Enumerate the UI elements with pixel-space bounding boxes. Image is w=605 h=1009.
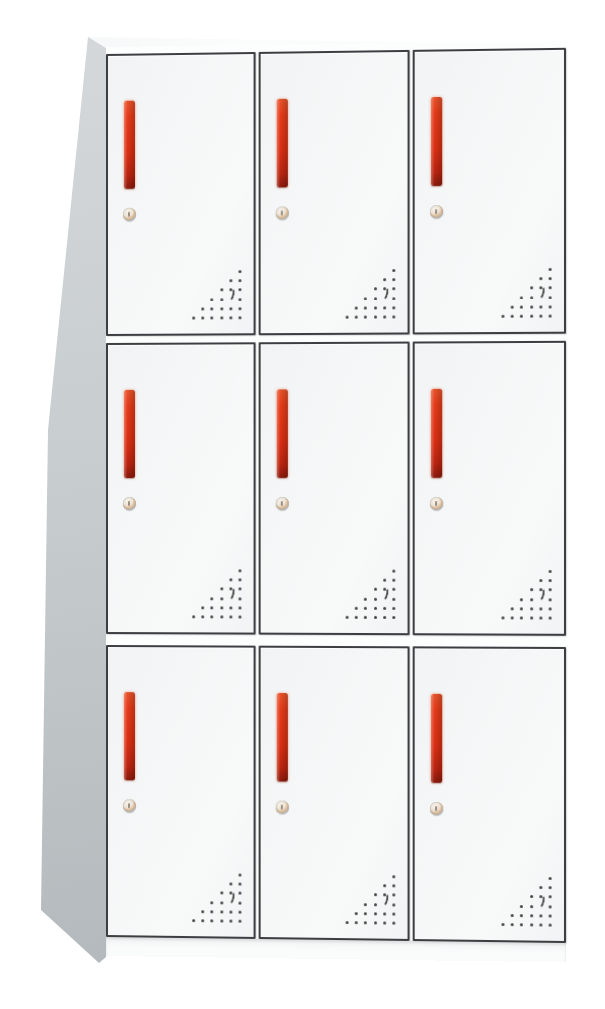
vent-hole-dot: [364, 912, 367, 915]
vent-hole-dot: [229, 307, 232, 310]
vent-hole-dot: [229, 606, 232, 609]
locker-door: [413, 48, 566, 335]
vent-hole-dot: [374, 597, 377, 600]
vent-hole-dot: [501, 923, 504, 926]
vent-hole-dot: [392, 306, 395, 309]
vent-hole-dot: [201, 316, 204, 319]
vent-hole-dot: [238, 920, 241, 923]
vent-hole-dot: [355, 921, 358, 924]
vent-hole-dot: [530, 598, 533, 601]
vent-hole-dot: [511, 914, 514, 917]
vent-hole-dot: [392, 297, 395, 300]
vent-crescent-cutout: [378, 285, 389, 301]
vent-hole-dot: [392, 922, 395, 925]
cam-lock: [276, 206, 289, 219]
vent-hole-dot: [238, 307, 241, 310]
vent-hole-dot: [374, 607, 377, 610]
vent-crescent-cutout: [378, 586, 389, 602]
vent-hole-dot: [530, 588, 533, 591]
locker-door: [106, 52, 256, 336]
vent-hole-dot: [238, 279, 241, 282]
locker-door: [106, 645, 256, 939]
vent-hole-dot: [549, 296, 552, 299]
vent-hole-dot: [530, 895, 533, 898]
vent-hole-dot: [511, 607, 514, 610]
vent-hole-dot: [374, 903, 377, 906]
vent-hole-dot: [549, 287, 552, 290]
vent-hole-dot: [539, 579, 542, 582]
vent-hole-dot: [520, 305, 523, 308]
vent-hole-dot: [392, 875, 395, 878]
vent-hole-dot: [238, 316, 241, 319]
vent-hole-dot: [192, 615, 195, 618]
vent-hole-dot: [229, 279, 232, 282]
cam-lock: [430, 205, 443, 218]
vent-hole-dot: [346, 921, 349, 924]
vent-hole-dot: [220, 307, 223, 310]
vent-hole-dot: [229, 615, 232, 618]
vent-hole-dot: [220, 588, 223, 591]
locker-door: [259, 342, 410, 636]
vent-hole-dot: [211, 919, 214, 922]
vent-hole-dot: [539, 315, 542, 318]
vent-hole-dot: [392, 912, 395, 915]
door-handle: [277, 693, 288, 782]
vent-hole-dot: [201, 919, 204, 922]
vent-hole-dot: [220, 901, 223, 904]
vent-hole-dot: [374, 616, 377, 619]
vent-hole-dot: [539, 616, 542, 619]
vent-crescent-cutout: [535, 284, 546, 300]
cam-lock: [123, 497, 136, 510]
vent-hole-dot: [355, 616, 358, 619]
cabinet-front-face: [106, 41, 566, 963]
vent-hole-dot: [549, 877, 552, 880]
vent-hole-dot: [374, 288, 377, 291]
vent-crescent-cutout: [535, 586, 546, 602]
vent-hole-dot: [238, 606, 241, 609]
vent-hole-dot: [392, 315, 395, 318]
vent-hole-dot: [211, 597, 214, 600]
vent-hole-dot: [549, 589, 552, 592]
vent-hole-dot: [229, 910, 232, 913]
vent-hole-dot: [192, 317, 195, 320]
vent-holes: [345, 269, 396, 320]
cam-lock: [430, 497, 443, 510]
vent-hole-dot: [211, 316, 214, 319]
vent-hole-dot: [346, 316, 349, 319]
vent-hole-dot: [392, 884, 395, 887]
vent-hole-dot: [383, 579, 386, 582]
vent-hole-dot: [530, 905, 533, 908]
vent-hole-dot: [364, 306, 367, 309]
vent-hole-dot: [238, 910, 241, 913]
vent-hole-dot: [549, 896, 552, 899]
locker-product-photo: [0, 0, 605, 1009]
vent-hole-dot: [374, 921, 377, 924]
vent-hole-dot: [374, 894, 377, 897]
door-handle: [277, 389, 288, 477]
vent-hole-dot: [220, 597, 223, 600]
vent-hole-dot: [364, 607, 367, 610]
vent-crescent-cutout: [225, 890, 236, 906]
vent-hole-dot: [392, 894, 395, 897]
door-handle: [124, 692, 135, 780]
vent-hole-dot: [211, 298, 214, 301]
vent-hole-dot: [511, 315, 514, 318]
vent-hole-dot: [549, 277, 552, 280]
vent-hole-dot: [549, 886, 552, 889]
cam-lock: [123, 799, 136, 812]
vent-hole-dot: [374, 588, 377, 591]
door-handle: [124, 101, 135, 189]
locker-door: [413, 341, 566, 636]
vent-hole-dot: [520, 914, 523, 917]
vent-hole-dot: [530, 287, 533, 290]
door-grid: [106, 41, 566, 963]
vent-hole-dot: [355, 316, 358, 319]
vent-hole-dot: [238, 578, 241, 581]
vent-hole-dot: [392, 588, 395, 591]
vent-crescent-cutout: [535, 893, 546, 909]
vent-hole-dot: [229, 883, 232, 886]
vent-holes: [191, 569, 241, 619]
vent-hole-dot: [549, 924, 552, 927]
vent-hole-dot: [501, 616, 504, 619]
vent-hole-dot: [392, 579, 395, 582]
vent-hole-dot: [355, 306, 358, 309]
vent-hole-dot: [201, 307, 204, 310]
vent-hole-dot: [211, 901, 214, 904]
vent-hole-dot: [201, 606, 204, 609]
vent-hole-dot: [374, 306, 377, 309]
vent-hole-dot: [364, 316, 367, 319]
door-handle: [431, 97, 442, 186]
vent-hole-dot: [520, 315, 523, 318]
vent-hole-dot: [539, 277, 542, 280]
vent-hole-dot: [383, 306, 386, 309]
vent-hole-dot: [383, 315, 386, 318]
vent-holes: [500, 268, 551, 319]
vent-hole-dot: [229, 316, 232, 319]
vent-hole-dot: [220, 615, 223, 618]
vent-hole-dot: [383, 616, 386, 619]
vent-hole-dot: [364, 921, 367, 924]
vent-hole-dot: [511, 616, 514, 619]
vent-hole-dot: [211, 307, 214, 310]
vent-hole-dot: [549, 315, 552, 318]
vent-hole-dot: [192, 919, 195, 922]
vent-hole-dot: [238, 597, 241, 600]
door-handle: [124, 390, 135, 478]
vent-holes: [500, 570, 551, 621]
vent-hole-dot: [520, 923, 523, 926]
vent-hole-dot: [364, 903, 367, 906]
vent-hole-dot: [238, 892, 241, 895]
vent-hole-dot: [220, 910, 223, 913]
vent-hole-dot: [530, 305, 533, 308]
vent-hole-dot: [364, 616, 367, 619]
cam-lock: [276, 497, 289, 510]
vent-hole-dot: [392, 278, 395, 281]
vent-hole-dot: [520, 616, 523, 619]
cam-lock: [276, 801, 289, 814]
vent-hole-dot: [520, 607, 523, 610]
vent-hole-dot: [238, 873, 241, 876]
vent-hole-dot: [530, 923, 533, 926]
vent-hole-dot: [392, 616, 395, 619]
vent-hole-dot: [220, 316, 223, 319]
vent-hole-dot: [355, 912, 358, 915]
vent-hole-dot: [549, 579, 552, 582]
vent-hole-dot: [238, 588, 241, 591]
vent-hole-dot: [501, 315, 504, 318]
vent-hole-dot: [238, 901, 241, 904]
vent-hole-dot: [229, 578, 232, 581]
vent-hole-dot: [520, 598, 523, 601]
vent-hole-dot: [220, 892, 223, 895]
door-handle: [277, 99, 288, 188]
vent-hole-dot: [549, 914, 552, 917]
vent-hole-dot: [364, 597, 367, 600]
vent-holes: [191, 873, 241, 924]
vent-hole-dot: [520, 905, 523, 908]
vent-holes: [191, 270, 241, 320]
vent-hole-dot: [392, 269, 395, 272]
vent-hole-dot: [201, 910, 204, 913]
vent-hole-dot: [211, 910, 214, 913]
vent-holes: [345, 569, 396, 620]
vent-hole-dot: [549, 617, 552, 620]
vent-hole-dot: [374, 315, 377, 318]
vent-hole-dot: [549, 305, 552, 308]
vent-hole-dot: [392, 903, 395, 906]
vent-hole-dot: [220, 919, 223, 922]
vent-crescent-cutout: [378, 891, 389, 907]
vent-hole-dot: [511, 923, 514, 926]
vent-hole-dot: [530, 315, 533, 318]
vent-hole-dot: [220, 606, 223, 609]
locker-door: [259, 50, 410, 335]
vent-hole-dot: [539, 923, 542, 926]
vent-hole-dot: [383, 884, 386, 887]
vent-hole-dot: [530, 914, 533, 917]
vent-hole-dot: [201, 615, 204, 618]
vent-hole-dot: [211, 615, 214, 618]
vent-hole-dot: [392, 607, 395, 610]
vent-hole-dot: [238, 270, 241, 273]
vent-hole-dot: [364, 297, 367, 300]
vent-crescent-cutout: [225, 286, 236, 302]
vent-hole-dot: [220, 289, 223, 292]
vent-holes: [500, 876, 551, 927]
vent-hole-dot: [346, 616, 349, 619]
vent-hole-dot: [238, 298, 241, 301]
vent-hole-dot: [238, 615, 241, 618]
cam-lock: [430, 802, 443, 815]
vent-hole-dot: [383, 921, 386, 924]
door-handle: [431, 694, 442, 783]
locker-door: [259, 646, 410, 941]
vent-hole-dot: [374, 297, 377, 300]
vent-hole-dot: [238, 883, 241, 886]
vent-holes: [345, 875, 396, 926]
vent-hole-dot: [520, 296, 523, 299]
cam-lock: [123, 208, 136, 221]
vent-hole-dot: [383, 912, 386, 915]
vent-hole-dot: [238, 569, 241, 572]
vent-hole-dot: [549, 607, 552, 610]
vent-hole-dot: [392, 570, 395, 573]
vent-hole-dot: [549, 570, 552, 573]
vent-hole-dot: [511, 305, 514, 308]
vent-hole-dot: [238, 289, 241, 292]
vent-hole-dot: [549, 905, 552, 908]
vent-hole-dot: [392, 597, 395, 600]
vent-hole-dot: [549, 268, 552, 271]
vent-hole-dot: [530, 296, 533, 299]
vent-hole-dot: [392, 288, 395, 291]
vent-hole-dot: [530, 616, 533, 619]
vent-hole-dot: [530, 607, 533, 610]
vent-hole-dot: [220, 298, 223, 301]
vent-hole-dot: [211, 606, 214, 609]
vent-hole-dot: [539, 607, 542, 610]
locker-door: [106, 342, 256, 634]
vent-hole-dot: [549, 598, 552, 601]
vent-crescent-cutout: [225, 586, 236, 602]
vent-hole-dot: [229, 920, 232, 923]
vent-hole-dot: [539, 914, 542, 917]
door-handle: [431, 389, 442, 478]
vent-hole-dot: [539, 886, 542, 889]
vent-hole-dot: [383, 607, 386, 610]
vent-hole-dot: [539, 305, 542, 308]
vent-hole-dot: [383, 278, 386, 281]
vent-hole-dot: [374, 912, 377, 915]
vent-hole-dot: [355, 607, 358, 610]
locker-door: [413, 646, 566, 943]
